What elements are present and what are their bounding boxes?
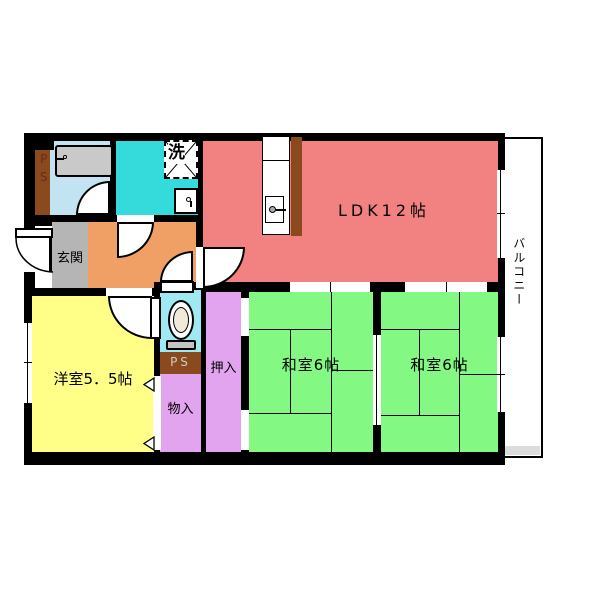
washitsu-right-label: 和室6帖 (383, 357, 496, 374)
kitchen-faucet-icon (269, 206, 276, 213)
window-line (497, 213, 505, 214)
oshiire-label: 押入 (206, 362, 241, 377)
oshiire-fusuma-lower (241, 410, 249, 450)
tatami-line (249, 413, 331, 414)
ldk-label: LDK12帖 (304, 202, 464, 220)
window-ldk (497, 170, 505, 258)
laundry-label: 洗 (168, 144, 185, 164)
monoire-label: 物入 (160, 403, 201, 418)
sliding-door-tick (446, 282, 447, 292)
balcony-edge (504, 446, 540, 455)
kitchen-counter-back (291, 137, 302, 236)
youshitsu-door-opening (106, 288, 152, 296)
ps-lower-label: PS (160, 356, 201, 370)
toilet-icon-inner (173, 307, 189, 333)
floor-plan: 洗 LDK12帖 和室6帖 和室6帖 洋室5．5帖 玄関 押入 物入 PS PS… (0, 0, 600, 593)
washitsu-left-label: 和室6帖 (253, 357, 369, 374)
kitchen-counter-line (262, 160, 290, 161)
fusuma-line (376, 335, 377, 425)
window-line (500, 170, 501, 258)
bathtub-icon (55, 145, 113, 177)
genkan-label: 玄関 (51, 252, 89, 267)
sliding-door-tick (330, 282, 331, 292)
kitchen-faucet-icon (276, 209, 286, 211)
bathtub-faucet-icon (63, 155, 67, 159)
window-line (24, 362, 32, 363)
toilet-tank (166, 340, 196, 350)
ldk-door-opening (196, 247, 203, 288)
balcony-label: バルコニー (511, 237, 525, 307)
tatami-line (381, 415, 459, 416)
youshitsu-door-panel (150, 297, 161, 339)
window-line (497, 374, 505, 375)
folding-door-marker (142, 436, 155, 451)
ps-left-label: PS (36, 152, 50, 188)
washroom-door-opening (117, 215, 154, 222)
washbasin-faucet-icon (190, 201, 192, 207)
window-line (27, 323, 28, 403)
washitsu-divider-fusuma (373, 335, 381, 425)
toilet-door-panel (160, 281, 194, 293)
front-door-swing-arc (14, 237, 55, 274)
tatami-line (381, 329, 459, 330)
oshiire-fusuma-upper (241, 298, 249, 336)
youshitsu-label: 洋室5．5帖 (34, 371, 152, 388)
window-youshitsu (24, 323, 32, 403)
wall-step (32, 141, 54, 150)
